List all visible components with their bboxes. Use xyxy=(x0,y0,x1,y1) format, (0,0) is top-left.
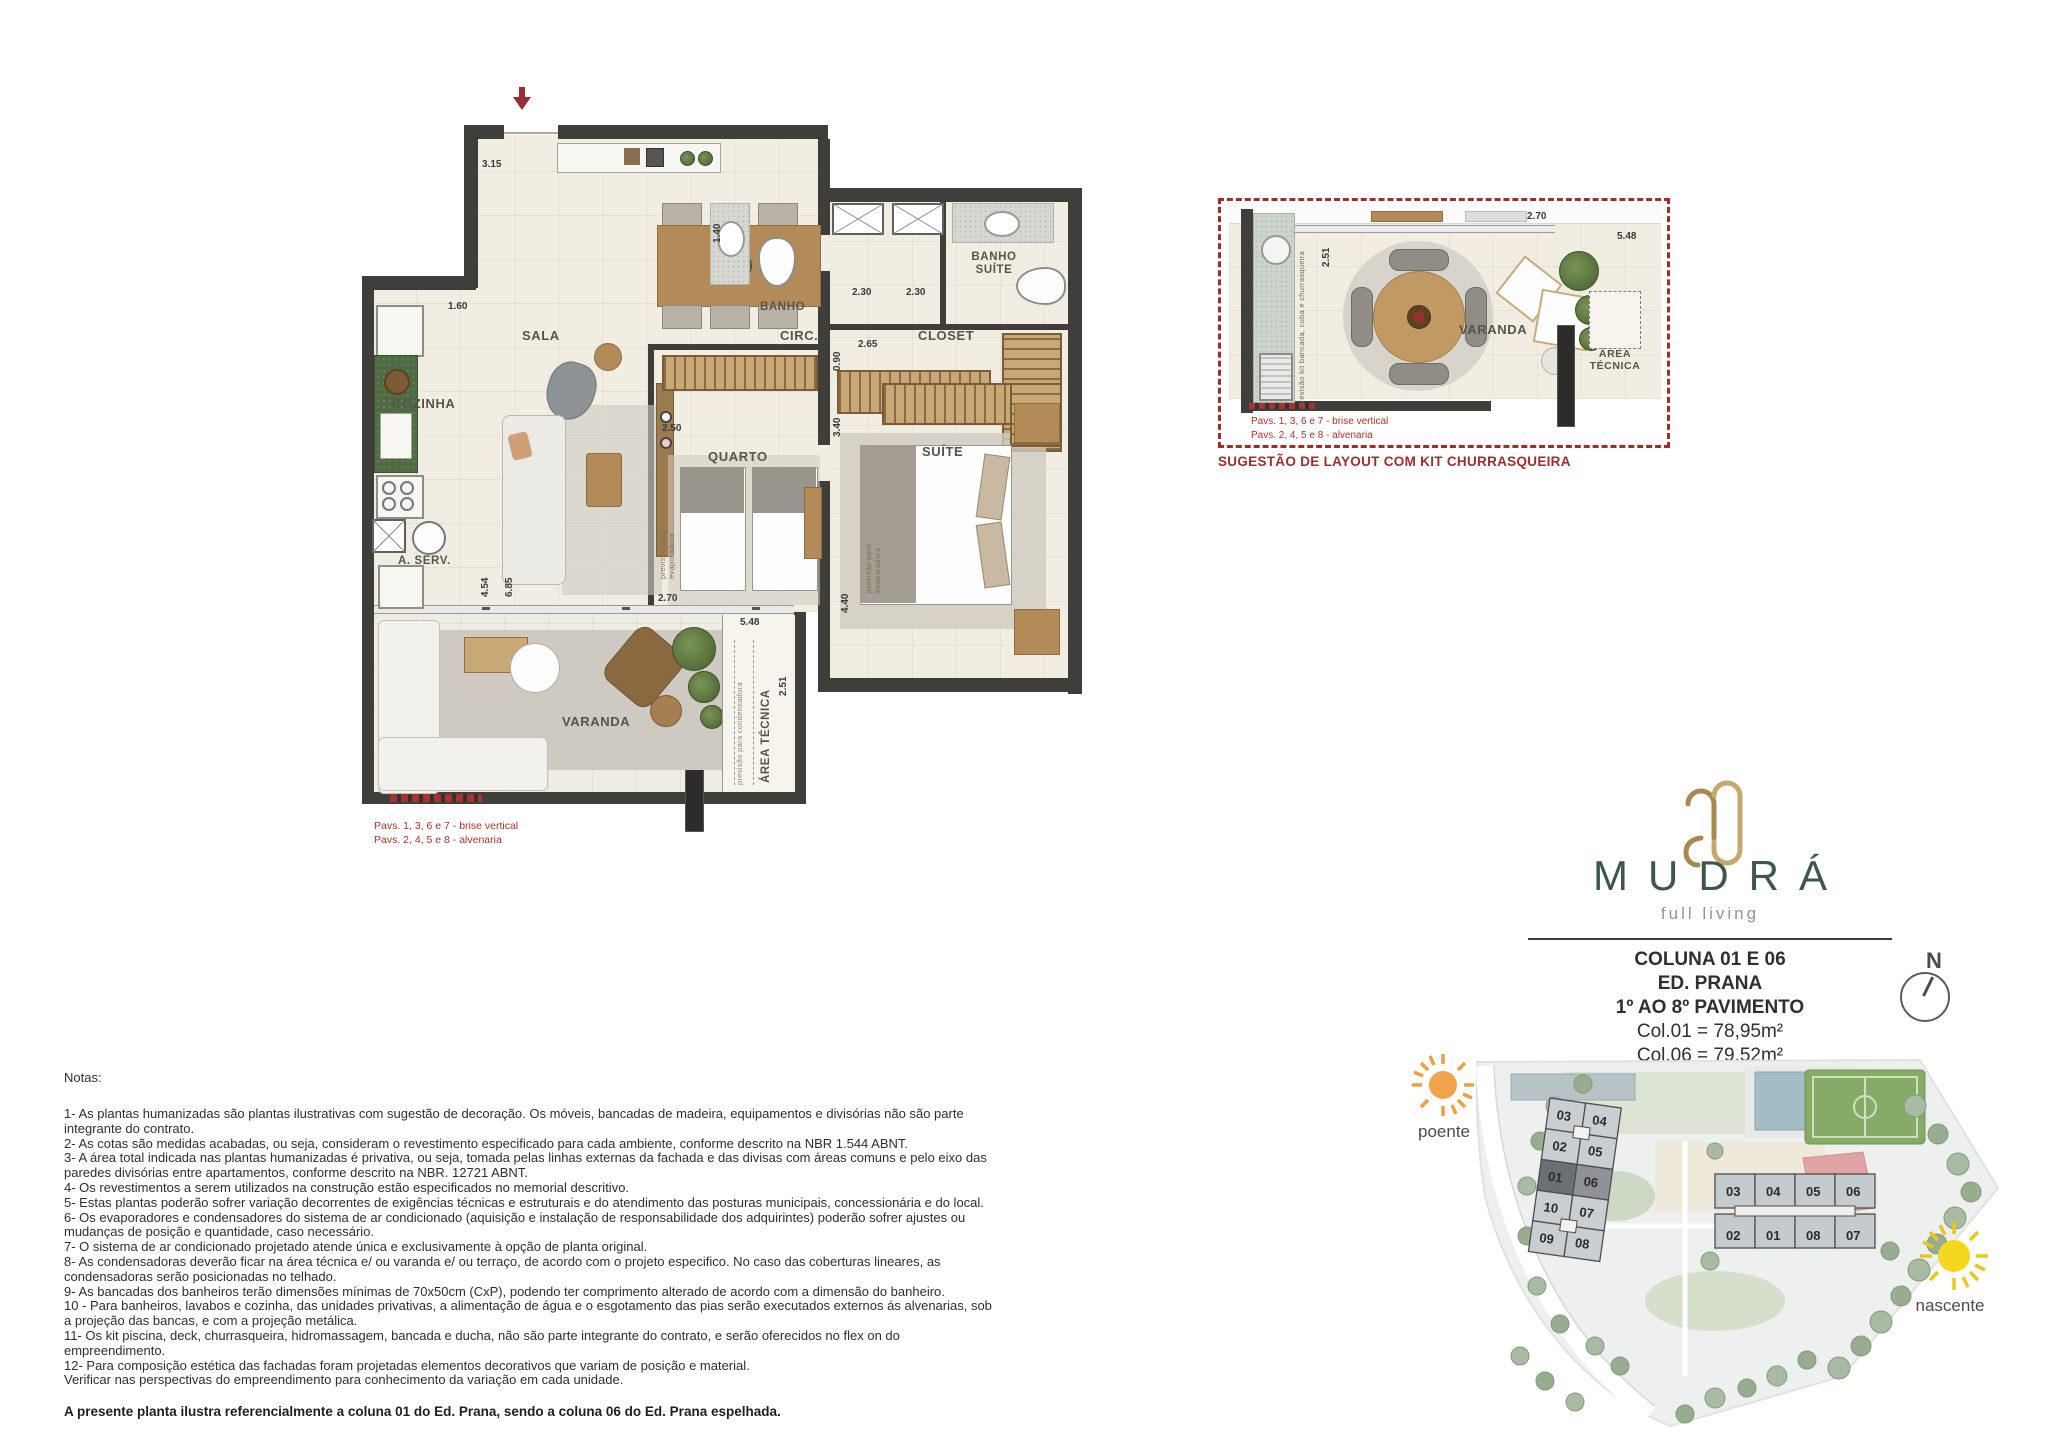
sliding-door xyxy=(1287,225,1555,233)
unit-number-highlight: 06 xyxy=(1583,1174,1599,1191)
quarto-wardrobe xyxy=(662,355,818,391)
room-label-area-tecnica: ÁREA TÉCNICA xyxy=(1579,349,1651,373)
floorplan-sheet: ÁREA TÉCNICA previsão para condensadora … xyxy=(0,0,2048,1448)
sliding-door-tick xyxy=(482,607,490,610)
cut-furniture xyxy=(1371,211,1443,222)
sugg-dim-varanda: 5.48 xyxy=(1617,231,1636,242)
sun-east-label: nascente xyxy=(1880,1296,2020,1316)
unit-number: 04 xyxy=(1591,1112,1608,1129)
dim-quarto-prof: 3.40 xyxy=(832,401,843,437)
unit-number: 05 xyxy=(1587,1143,1603,1160)
main-plan-caption-2: Pavs. 2, 4, 5 e 8 - alvenaria xyxy=(374,833,502,847)
plant xyxy=(700,705,724,729)
unit-number: 08 xyxy=(1574,1235,1590,1252)
brand-wordmark: MUDRÁ xyxy=(1556,852,1864,900)
unit-number-highlight: 01 xyxy=(1547,1169,1563,1186)
bench xyxy=(1465,287,1487,347)
sliding-door xyxy=(374,605,794,614)
unit-number: 03 xyxy=(1556,1107,1572,1124)
pouf xyxy=(650,695,682,727)
wall xyxy=(818,678,1082,692)
burner xyxy=(382,497,396,511)
dining-chair xyxy=(662,203,702,227)
dim-closet: 2.65 xyxy=(858,339,877,350)
room-label-banho-suite: BANHO SUÍTE xyxy=(958,251,1030,277)
dim-box-banho: 2.30 xyxy=(852,287,871,298)
wall xyxy=(648,344,824,350)
unit-number: 07 xyxy=(1846,1228,1860,1243)
dim-varanda-prof: 2.51 xyxy=(778,660,789,696)
room-label-circ: CIRC. xyxy=(780,329,818,344)
service-sink xyxy=(372,519,406,553)
quarto-desk xyxy=(804,487,822,559)
brand-divider xyxy=(1528,938,1892,940)
unit-number: 02 xyxy=(1726,1228,1740,1243)
unit-number: 10 xyxy=(1543,1199,1559,1216)
unit-number: 08 xyxy=(1806,1228,1820,1243)
washer xyxy=(412,521,446,555)
coffee-table xyxy=(586,453,622,507)
room-label-aserv: A. SERV. xyxy=(398,555,451,568)
sun-west-icon xyxy=(1408,1050,1478,1120)
lawn xyxy=(1645,1271,1785,1331)
burner xyxy=(400,481,414,495)
varanda-sofa xyxy=(378,737,548,791)
unit-number: 04 xyxy=(1766,1184,1781,1199)
suggestion-title: SUGESTÃO DE LAYOUT COM KIT CHURRASQUEIRA xyxy=(1218,454,1698,469)
room-label-varanda: VARANDA xyxy=(1459,323,1527,338)
burner xyxy=(400,497,414,511)
annotation-kit-churrasqueira: previsão kit bancada, cuba e churrasquei… xyxy=(1297,229,1323,407)
dim-circ: 0.90 xyxy=(832,337,843,371)
unit-number: 01 xyxy=(1766,1228,1780,1243)
main-floor-plan: ÁREA TÉCNICA previsão para condensadora … xyxy=(362,115,1086,855)
shower-box xyxy=(832,203,884,235)
wall xyxy=(362,600,374,804)
wall xyxy=(464,125,478,288)
dim-porta-varanda: 2.70 xyxy=(658,593,677,604)
wall xyxy=(1241,209,1253,413)
kitchen-sink xyxy=(380,413,412,459)
plant xyxy=(1559,251,1599,291)
unit-info-coluna: COLUNA 01 E 06 xyxy=(1528,948,1892,972)
annotation-condensadora: previsão para condensadora xyxy=(734,640,754,785)
wall xyxy=(818,188,1082,202)
compass-north-label: N xyxy=(1926,948,1942,974)
speaker xyxy=(660,437,672,449)
dim-box-suite: 2.30 xyxy=(906,287,925,298)
notes-body: 1- As plantas humanizadas são plantas il… xyxy=(64,1107,1069,1388)
annotation-evaporadora-quarto: previsão para evaporadora xyxy=(658,483,676,579)
burner xyxy=(382,481,396,495)
unit-number: 06 xyxy=(1846,1184,1860,1199)
decor-board xyxy=(624,148,640,165)
side-table xyxy=(594,343,622,371)
suggestion-layout-plan: previsão kit bancada, cuba e churrasquei… xyxy=(1218,198,1670,448)
room-label-cozinha: COZINHA xyxy=(392,397,455,412)
sugg-dim-porta: 2.70 xyxy=(1527,211,1546,222)
shower-box xyxy=(892,203,944,235)
nightstand xyxy=(1014,609,1060,655)
plant xyxy=(672,627,716,671)
dining-chair xyxy=(758,203,798,227)
dim-entrada: 3.15 xyxy=(482,159,501,170)
area-tecnica-box xyxy=(1589,291,1641,349)
compass-circle xyxy=(1900,972,1950,1022)
plant xyxy=(698,151,713,166)
dim-aserv: 4.54 xyxy=(480,561,491,597)
varanda-round-table xyxy=(510,643,560,693)
stove xyxy=(376,475,424,519)
fridge xyxy=(376,305,424,357)
unit-info-pavimento: 1º AO 8º PAVIMENTO xyxy=(1528,996,1892,1020)
unit-info-area01: Col.01 = 78,95m² xyxy=(1528,1020,1892,1044)
unit-info-edificio: ED. PRANA xyxy=(1528,972,1892,996)
sun-east-icon xyxy=(1916,1218,1992,1294)
bbq-grill xyxy=(1259,353,1293,401)
suggestion-caption-2: Pavs. 2, 4, 5 e 8 - alvenaria xyxy=(1251,429,1373,443)
wall xyxy=(362,276,476,290)
unit-number: 03 xyxy=(1726,1184,1740,1199)
wall xyxy=(1068,188,1082,694)
room-label-banho: BANHO xyxy=(760,301,805,314)
entry-arrow-icon xyxy=(513,97,531,110)
unit-number: 07 xyxy=(1578,1204,1594,1221)
dim-sala: 6.85 xyxy=(504,561,515,597)
annotation-evaporadora-suite: previsão para evaporadora xyxy=(864,497,882,593)
brise-red-dashes xyxy=(390,794,482,802)
notes-footer: A presente planta ilustra referencialmen… xyxy=(64,1404,1069,1419)
bench xyxy=(1389,363,1449,385)
fruit-plate xyxy=(384,369,410,395)
notes-block: Notas: 1- As plantas humanizadas são pla… xyxy=(64,1070,1069,1419)
plant xyxy=(680,151,695,166)
food-plate xyxy=(1407,305,1431,329)
nightstand xyxy=(1014,403,1060,443)
compass: N xyxy=(1894,948,1974,1032)
entry-arrow-icon xyxy=(519,87,525,97)
wall xyxy=(558,125,828,139)
entry-door-leaf xyxy=(504,132,558,134)
room-label-suite: SUÍTE xyxy=(922,445,963,460)
suggestion-caption-1: Pavs. 1, 3, 6 e 7 - brise vertical xyxy=(1251,415,1388,429)
room-label-sala: SALA xyxy=(522,329,560,344)
lap-pool xyxy=(1511,1074,1635,1100)
main-plan-caption-1: Pavs. 1, 3, 6 e 7 - brise vertical xyxy=(374,819,518,833)
sun-west-label: poente xyxy=(1402,1122,1486,1142)
dim-varanda: 5.48 xyxy=(740,617,759,628)
dining-chair xyxy=(662,305,702,329)
area-tecnica-strip xyxy=(722,615,795,792)
sugg-dim-prof: 2.51 xyxy=(1321,233,1332,267)
bench xyxy=(1389,249,1449,271)
notes-heading: Notas: xyxy=(64,1070,1069,1085)
plant xyxy=(688,671,720,703)
building-b: 03 04 05 06 02 01 08 07 xyxy=(1715,1174,1875,1248)
dim-cozinha: 1.60 xyxy=(448,301,467,312)
dim-suite: 4.40 xyxy=(840,577,851,613)
room-label-quarto: QUARTO xyxy=(708,450,768,465)
unit-number: 02 xyxy=(1551,1138,1567,1155)
speaker xyxy=(660,411,672,423)
room-label-varanda: VARANDA xyxy=(562,715,630,730)
cut-furniture xyxy=(1465,211,1527,222)
banho-suite-sink xyxy=(984,211,1020,237)
room-label-closet: CLOSET xyxy=(918,329,974,344)
pillar xyxy=(1557,325,1575,427)
dining-chair xyxy=(710,305,750,329)
dim-banho: 1.40 xyxy=(712,207,723,243)
sliding-door-tick xyxy=(752,607,760,610)
bench xyxy=(1351,287,1373,347)
room-label-area-tecnica: ÁREA TÉCNICA xyxy=(760,633,773,783)
dim-quarto: 2.50 xyxy=(662,423,681,434)
decor-oven xyxy=(646,148,664,167)
bbq-sink xyxy=(1261,235,1291,265)
wall xyxy=(794,612,806,804)
bed-single-blanket xyxy=(680,467,744,513)
unit-number: 09 xyxy=(1538,1230,1554,1247)
brand-tagline: full living xyxy=(1556,904,1864,924)
laundry-tub xyxy=(378,565,424,609)
unit-number: 05 xyxy=(1806,1184,1820,1199)
sliding-door-tick xyxy=(622,607,630,610)
wall xyxy=(362,276,374,612)
